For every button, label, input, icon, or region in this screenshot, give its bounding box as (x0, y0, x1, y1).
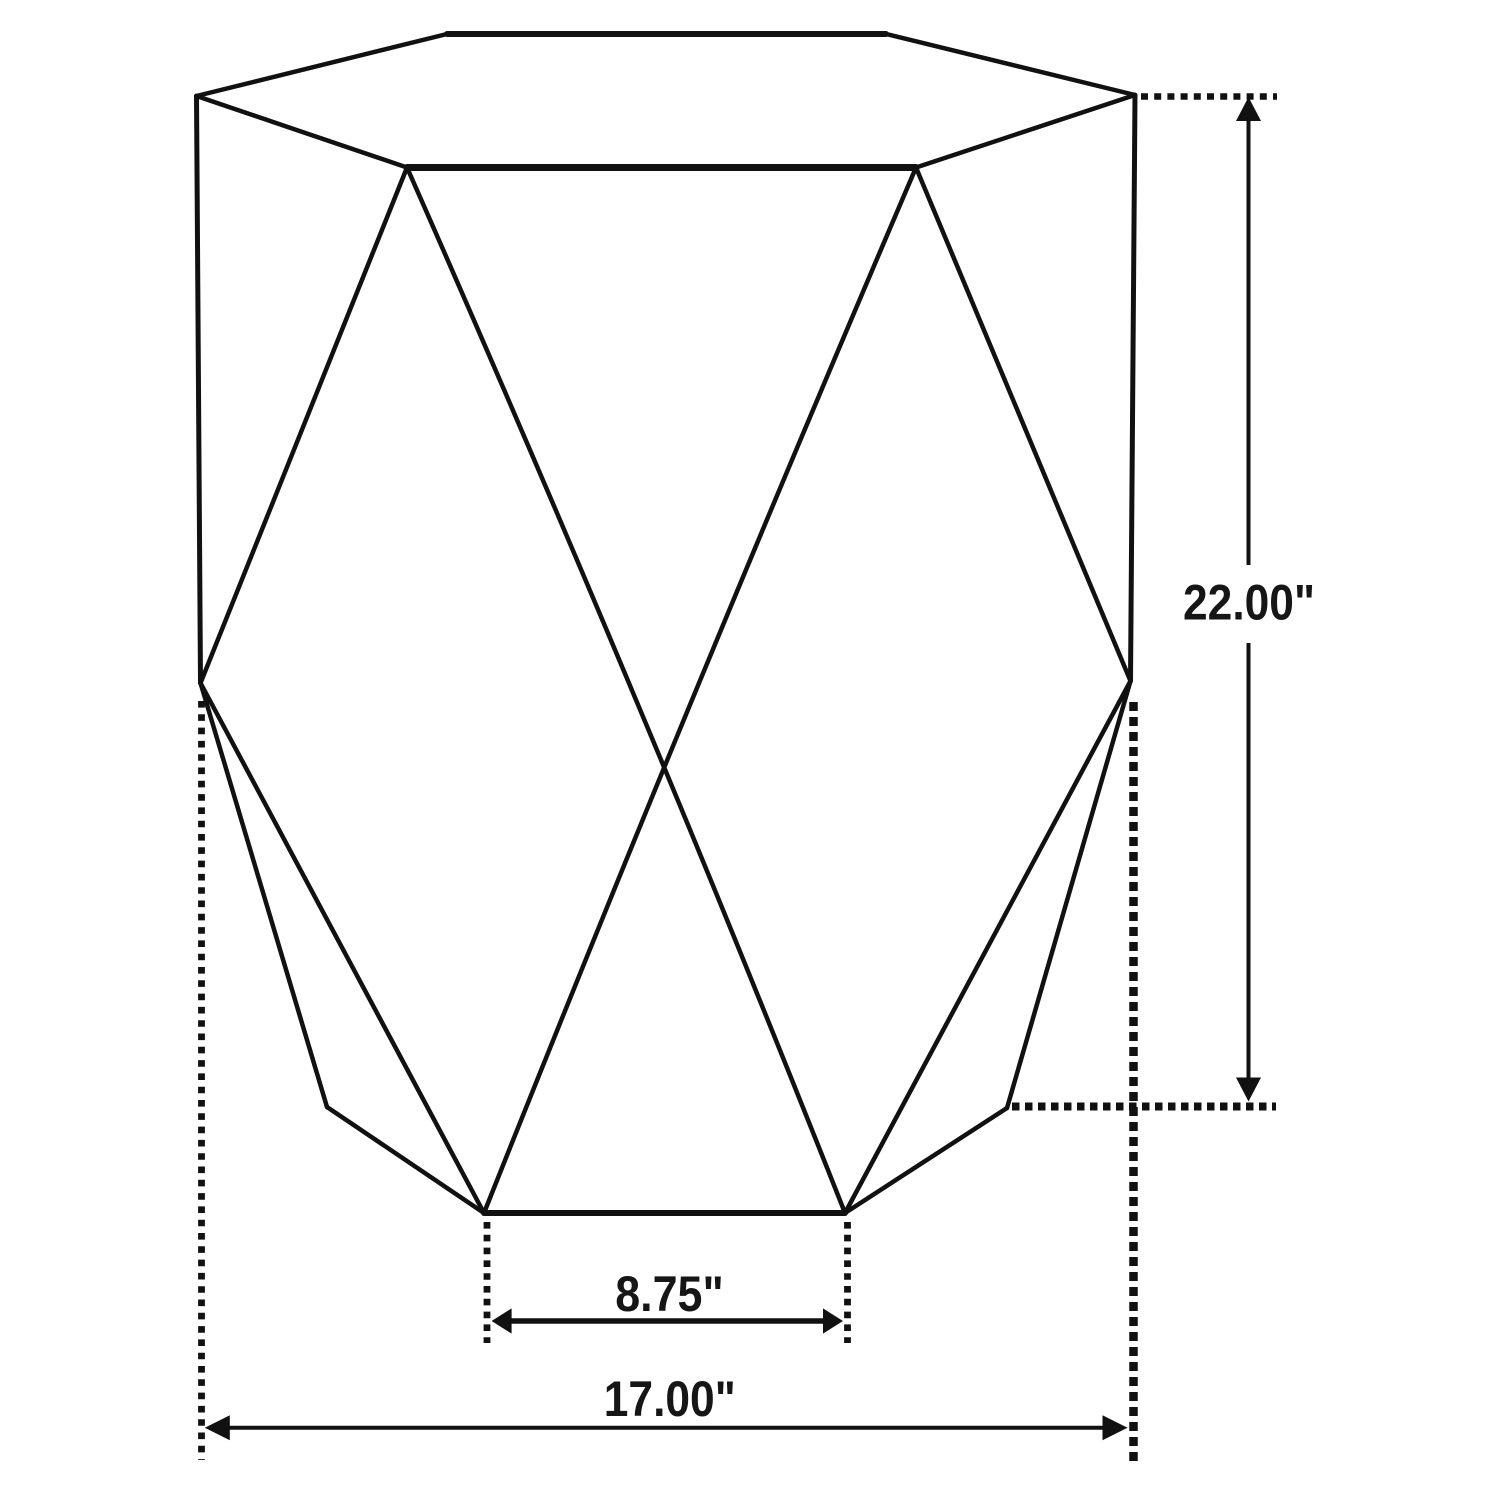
svg-text:22.00": 22.00" (1183, 575, 1315, 631)
svg-text:17.00": 17.00" (604, 1371, 736, 1427)
svg-text:8.75": 8.75" (615, 1266, 724, 1322)
